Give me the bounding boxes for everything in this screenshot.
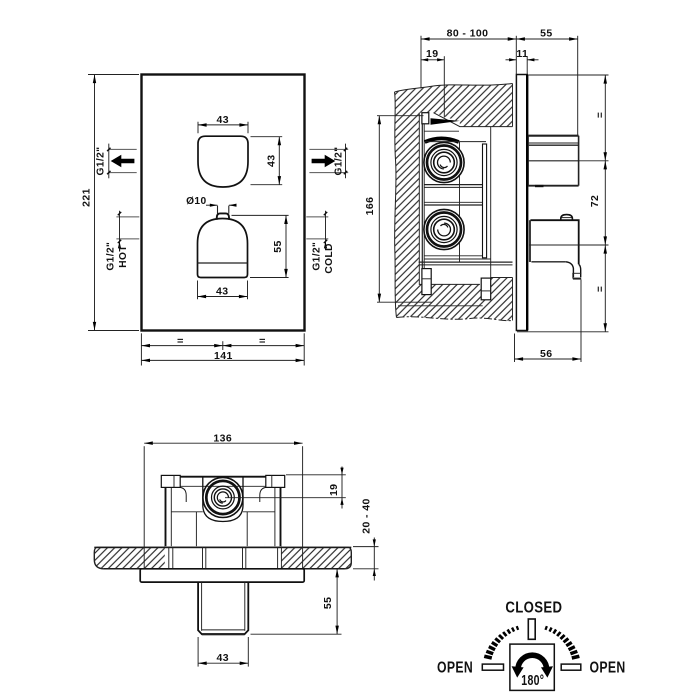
svg-text:56: 56 [540, 348, 552, 360]
svg-text:43: 43 [217, 114, 229, 126]
svg-text:72: 72 [589, 195, 601, 207]
svg-text:20 - 40: 20 - 40 [361, 498, 373, 534]
svg-text:G1/2": G1/2" [105, 242, 116, 271]
svg-text:43: 43 [216, 286, 228, 298]
svg-text:19: 19 [426, 48, 438, 60]
svg-text:55: 55 [540, 28, 552, 40]
svg-text:HOT: HOT [118, 245, 129, 268]
svg-text:G1/2": G1/2" [96, 147, 107, 176]
svg-text:19: 19 [328, 484, 340, 496]
svg-text:55: 55 [272, 240, 284, 252]
svg-text:80 - 100: 80 - 100 [447, 28, 489, 40]
svg-text:G1/2": G1/2" [311, 242, 322, 271]
svg-text:141: 141 [214, 350, 233, 362]
svg-text:221: 221 [81, 188, 93, 207]
svg-text:11: 11 [516, 48, 528, 60]
svg-text:166: 166 [364, 197, 376, 216]
svg-text:43: 43 [266, 154, 278, 166]
svg-text:OPEN: OPEN [590, 660, 626, 677]
svg-text:136: 136 [213, 432, 232, 444]
svg-text:CLOSED: CLOSED [505, 600, 562, 617]
svg-text:OPEN: OPEN [437, 660, 473, 677]
svg-text:180°: 180° [521, 673, 544, 689]
svg-text:43: 43 [216, 652, 228, 664]
svg-text:G1/2": G1/2" [333, 147, 344, 176]
svg-text:COLD: COLD [324, 243, 335, 273]
svg-text:Ø10: Ø10 [186, 196, 206, 207]
svg-text:55: 55 [322, 597, 334, 609]
